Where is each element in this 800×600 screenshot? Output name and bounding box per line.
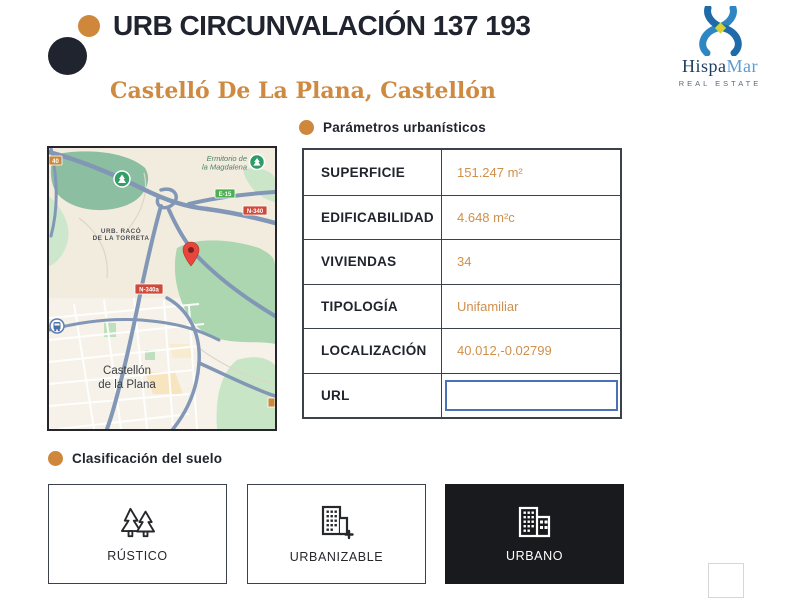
empty-checkbox[interactable]	[708, 563, 744, 598]
table-row-superficie: SUPERFICIE 151.247 m²	[304, 150, 620, 195]
road-badge-40: 40	[49, 156, 62, 165]
classification-section-header: Clasificación del suelo	[48, 451, 222, 466]
row-value: 151.247 m²	[442, 150, 620, 195]
row-label: LOCALIZACIÓN	[304, 329, 442, 373]
svg-text:40: 40	[52, 159, 59, 165]
svg-text:URB. RACÓ: URB. RACÓ	[101, 226, 141, 235]
option-urbanizable[interactable]: URBANIZABLE	[247, 484, 426, 584]
trees-icon	[117, 506, 159, 540]
url-input[interactable]	[445, 380, 618, 411]
road-badge-e15: E-15	[215, 189, 235, 198]
svg-text:E-15: E-15	[219, 192, 232, 198]
svg-text:la Magdalena: la Magdalena	[202, 163, 247, 172]
option-rustico[interactable]: RÚSTICO	[48, 484, 227, 584]
location-subtitle: Castelló De La Plana, Castellón	[110, 78, 496, 104]
road-badge-n340: N-340	[243, 206, 267, 215]
row-value: 40.012,-0.02799	[442, 329, 620, 373]
bullet-dot-icon	[48, 451, 63, 466]
bullet-dot-icon	[299, 120, 314, 135]
logo-word-hispa: Hispa	[682, 56, 727, 76]
svg-text:de la Plana: de la Plana	[98, 379, 156, 391]
option-label: URBANO	[506, 549, 563, 563]
row-value: Unifamiliar	[442, 285, 620, 329]
ermitorio-label: Ermitorio de la Magdalena	[202, 154, 247, 172]
road-badge-n340a: N-340a	[135, 284, 163, 294]
logo-word-mar: Mar	[727, 56, 759, 76]
svg-text:Castellón: Castellón	[103, 365, 151, 377]
svg-text:DE LA TORRETA: DE LA TORRETA	[93, 235, 150, 242]
table-row-url: URL	[304, 373, 620, 418]
parameters-section-header: Parámetros urbanísticos	[299, 120, 486, 135]
urb-raco-label: URB. RACÓ DE LA TORRETA	[93, 226, 150, 242]
row-label: EDIFICABILIDAD	[304, 196, 442, 240]
row-label: SUPERFICIE	[304, 150, 442, 195]
location-map: 40 E-15 N-340 N-340a Ermitorio de la Mag…	[47, 146, 277, 431]
classification-section-title: Clasificación del suelo	[72, 451, 222, 466]
building-icon	[516, 506, 554, 540]
logo-tagline: REAL ESTATE	[660, 79, 780, 88]
table-row-edificabilidad: EDIFICABILIDAD 4.648 m²c	[304, 195, 620, 240]
row-value: 34	[442, 240, 620, 284]
ermitorio-poi-icon	[250, 155, 265, 170]
park-poi-icon	[114, 171, 130, 187]
svg-text:N-340a: N-340a	[139, 288, 159, 294]
option-urbano-selected[interactable]: URBANO	[445, 484, 624, 584]
hispamar-logo: HispaMar REAL ESTATE	[660, 6, 780, 88]
hispamar-logo-icon	[693, 6, 747, 56]
property-slide: URB CIRCUNVALACIÓN 137 193 HispaMar REAL…	[0, 0, 800, 600]
option-label: RÚSTICO	[107, 549, 167, 563]
svg-text:N-340: N-340	[247, 209, 264, 215]
parameters-section-title: Parámetros urbanísticos	[323, 120, 486, 135]
parameters-table: SUPERFICIE 151.247 m² EDIFICABILIDAD 4.6…	[302, 148, 622, 419]
transit-poi-icon	[50, 319, 64, 333]
table-row-localizacion: LOCALIZACIÓN 40.012,-0.02799	[304, 328, 620, 373]
building-plus-icon	[318, 505, 356, 541]
row-value: 4.648 m²c	[442, 196, 620, 240]
decor-orange-dot	[78, 15, 100, 37]
row-label: VIVIENDAS	[304, 240, 442, 284]
logo-wordmark: HispaMar	[660, 56, 780, 77]
table-row-viviendas: VIVIENDAS 34	[304, 239, 620, 284]
option-label: URBANIZABLE	[290, 550, 383, 564]
decor-dark-circle	[48, 37, 87, 75]
row-value	[442, 374, 620, 418]
table-row-tipologia: TIPOLOGÍA Unifamiliar	[304, 284, 620, 329]
row-label: TIPOLOGÍA	[304, 285, 442, 329]
row-label: URL	[304, 374, 442, 418]
road-badge-right-edge	[268, 398, 275, 407]
page-title: URB CIRCUNVALACIÓN 137 193	[113, 10, 673, 42]
